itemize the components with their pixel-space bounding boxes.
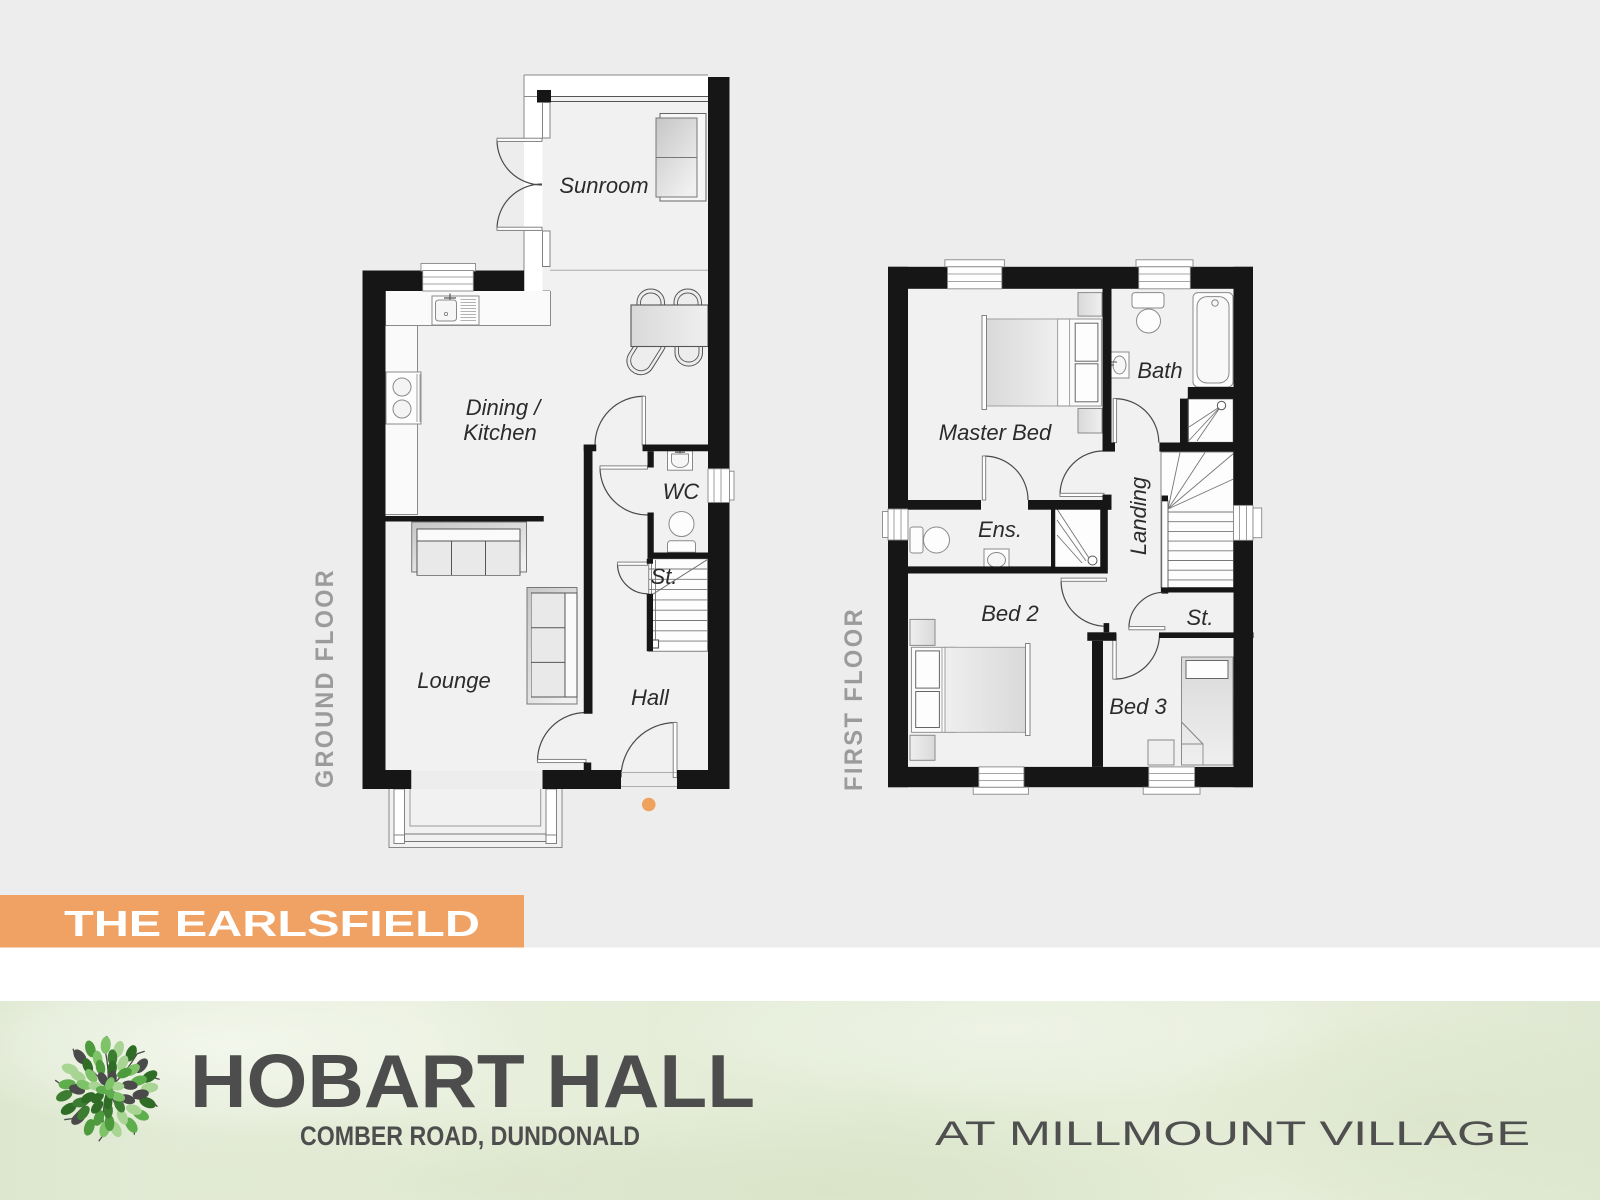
svg-text:Dining /: Dining / xyxy=(466,395,542,420)
svg-text:Ens.: Ens. xyxy=(978,517,1022,542)
svg-text:Landing: Landing xyxy=(1126,476,1151,555)
svg-text:Sunroom: Sunroom xyxy=(559,173,648,198)
svg-text:Lounge: Lounge xyxy=(417,668,490,693)
svg-text:HOBART HALL: HOBART HALL xyxy=(190,1039,755,1123)
svg-text:Bath: Bath xyxy=(1137,358,1182,383)
svg-text:St.: St. xyxy=(651,564,678,589)
svg-text:THE EARLSFIELD: THE EARLSFIELD xyxy=(64,903,480,944)
svg-text:AT MILLMOUNT VILLAGE: AT MILLMOUNT VILLAGE xyxy=(935,1115,1530,1153)
svg-text:Bed 3: Bed 3 xyxy=(1109,694,1167,719)
svg-text:Hall: Hall xyxy=(631,685,670,710)
svg-text:Bed 2: Bed 2 xyxy=(981,601,1039,626)
svg-text:WC: WC xyxy=(663,479,700,504)
svg-text:COMBER ROAD, DUNDONALD: COMBER ROAD, DUNDONALD xyxy=(300,1121,640,1151)
svg-text:Master Bed: Master Bed xyxy=(939,420,1052,445)
svg-text:Kitchen: Kitchen xyxy=(463,420,536,445)
svg-text:St.: St. xyxy=(1187,605,1214,630)
svg-text:GROUND FLOOR: GROUND FLOOR xyxy=(311,568,339,788)
svg-text:FIRST FLOOR: FIRST FLOOR xyxy=(840,607,868,791)
